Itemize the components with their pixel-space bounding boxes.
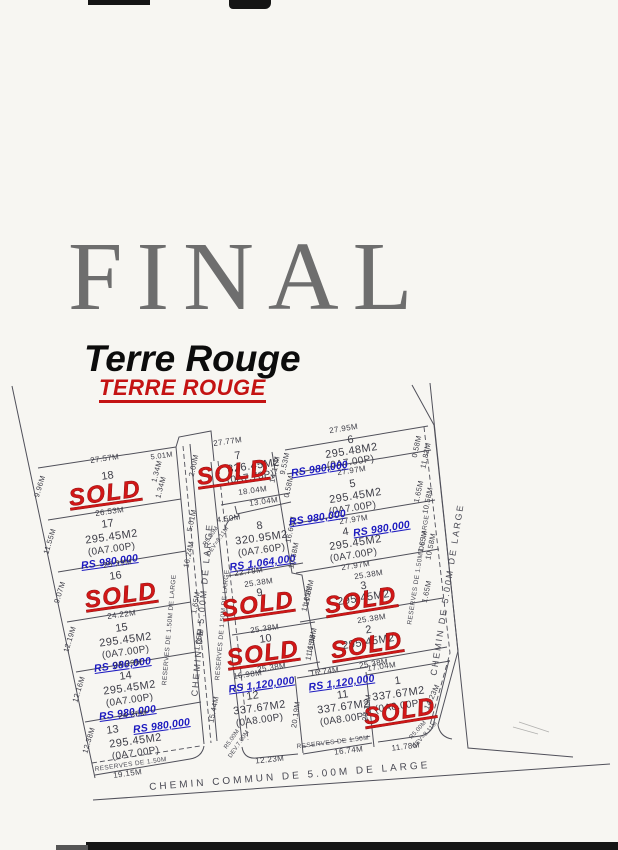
page-title: Terre Rouge bbox=[84, 340, 301, 377]
svg-text:27.57M: 27.57M bbox=[90, 452, 120, 465]
sold-stamp-3: SOLD bbox=[323, 582, 399, 620]
svg-text:27.77M: 27.77M bbox=[213, 435, 243, 448]
reserve-label-right: RESERVES DE 1.50M DE LARGE bbox=[406, 514, 430, 625]
lot-15: 15 295.45M2 (0A7.00P) RS 980,000 12.19M bbox=[61, 621, 152, 675]
svg-text:9.53M: 9.53M bbox=[278, 452, 291, 476]
svg-text:5.01M: 5.01M bbox=[150, 450, 173, 462]
lot-7: 27.77M 7 326.45M2 (0A7.73P) SOLD 14.17M … bbox=[195, 435, 291, 508]
svg-text:5.01M: 5.01M bbox=[185, 509, 198, 533]
svg-text:4: 4 bbox=[342, 526, 350, 539]
lot-9: 25.38M 9 SOLD 11.65M bbox=[220, 576, 314, 623]
svg-text:8: 8 bbox=[256, 520, 264, 533]
final-watermark: FINAL bbox=[68, 228, 427, 326]
svg-text:18.04M: 18.04M bbox=[238, 484, 268, 497]
svg-text:27.95M: 27.95M bbox=[329, 422, 359, 435]
lot-16: 25.29M 16 SOLD 24.22M 9.07M bbox=[52, 557, 159, 621]
scanned-plan-page: FINAL Terre Rouge TERRE ROUGE bbox=[0, 0, 618, 850]
svg-text:12: 12 bbox=[246, 689, 260, 703]
svg-text:12.23M: 12.23M bbox=[255, 754, 285, 766]
svg-text:17: 17 bbox=[101, 517, 115, 531]
svg-text:14: 14 bbox=[119, 669, 133, 683]
svg-text:1: 1 bbox=[394, 675, 402, 688]
lot-18: 27.57M 18 9.96M SOLD bbox=[32, 452, 143, 512]
survey-plan: CHEMIN COMMUN DE 5.00M DE LARGE CHEMIN D… bbox=[0, 375, 618, 850]
lot-12: 16.98M RS 1,120,000 12 337.67M2 (0A8.00P… bbox=[206, 668, 295, 765]
svg-text:4.50M: 4.50M bbox=[216, 512, 241, 524]
svg-text:11.55M: 11.55M bbox=[41, 527, 57, 555]
bottom-road-label: CHEMIN COMMUN DE 5.00M DE LARGE bbox=[149, 760, 431, 793]
scan-artifact-top-1 bbox=[88, 0, 150, 5]
reserve-label-left-west: RESERVES DE 1.50M DE LARGE bbox=[161, 574, 178, 686]
svg-text:12.38M: 12.38M bbox=[80, 726, 96, 754]
svg-text:5: 5 bbox=[349, 478, 357, 491]
svg-text:15.44M: 15.44M bbox=[206, 695, 220, 723]
svg-text:10.58M: 10.58M bbox=[286, 541, 300, 569]
svg-text:25.38M: 25.38M bbox=[354, 568, 384, 581]
sold-stamp-16: SOLD bbox=[83, 577, 159, 614]
svg-text:RS 980,000: RS 980,000 bbox=[132, 716, 191, 736]
scan-artifact-top-2 bbox=[229, 0, 271, 9]
svg-text:12.16M: 12.16M bbox=[70, 675, 86, 703]
lot-10: 25.38M 10 SOLD 25.38M 11.65M bbox=[225, 622, 318, 674]
svg-text:13: 13 bbox=[106, 723, 120, 737]
sold-stamp-9: SOLD bbox=[220, 586, 296, 623]
svg-text:11.78M: 11.78M bbox=[391, 740, 420, 752]
right-road-label: CHEMIN DE 5.00M DE LARGE bbox=[428, 503, 465, 676]
svg-text:9.96M: 9.96M bbox=[32, 474, 47, 498]
sold-stamp-2: SOLD bbox=[329, 627, 405, 665]
svg-text:16.74M: 16.74M bbox=[334, 744, 364, 756]
svg-text:15: 15 bbox=[115, 621, 129, 635]
svg-text:16.74M: 16.74M bbox=[310, 665, 340, 678]
lot-13: 24.35M 13 RS 980,000 295.45M2 (0A7.00P) … bbox=[80, 708, 190, 780]
svg-text:16: 16 bbox=[109, 569, 123, 583]
